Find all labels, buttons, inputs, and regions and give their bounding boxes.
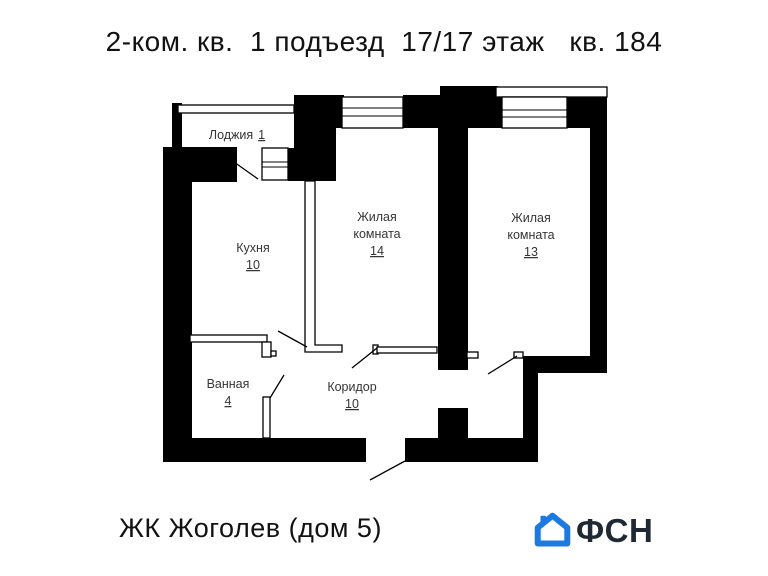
living-14-door-leaf (352, 348, 377, 368)
room-label-bathroom: Ванная (207, 377, 250, 391)
bathroom-door-leaf (270, 375, 284, 398)
fsn-logo: ФСН (534, 511, 653, 550)
room-label-living-14: Жилая (357, 210, 397, 224)
living-13-door-leaf (488, 356, 517, 374)
floorplan-drawing: Лоджия1 Кухня 10 Жилая комната 14 Жилая … (0, 0, 768, 576)
room-label-loggia: Лоджия1 (209, 128, 265, 142)
room-area-kitchen: 10 (246, 258, 260, 272)
house-logo-icon (534, 511, 571, 550)
kitchen-door-leaf (278, 331, 307, 347)
room-label-kitchen: Кухня (236, 241, 269, 255)
balcony-door-block (262, 148, 288, 180)
logo-text: ФСН (576, 514, 653, 547)
room-area-living-14: 14 (370, 244, 384, 258)
window-living-14 (342, 97, 403, 128)
room-label-corridor: Коридор (327, 380, 376, 394)
project-name: ЖК Жоголев (дом 5) (119, 513, 382, 544)
room-area-corridor: 10 (345, 397, 359, 411)
room-label-living-13: Жилая (511, 211, 551, 225)
room-label-living-13-line2: комната (507, 228, 554, 242)
loggia-door-leaf (234, 162, 258, 179)
floorplan-page: 2-ком. кв. 1 подъезд 17/17 этаж кв. 184 (0, 0, 768, 576)
room-area-bathroom: 4 (225, 394, 232, 408)
room-label-living-14-line2: комната (353, 227, 400, 241)
entry-door-leaf (370, 461, 405, 480)
window-living-13 (502, 97, 567, 128)
room-area-living-13: 13 (524, 245, 538, 259)
